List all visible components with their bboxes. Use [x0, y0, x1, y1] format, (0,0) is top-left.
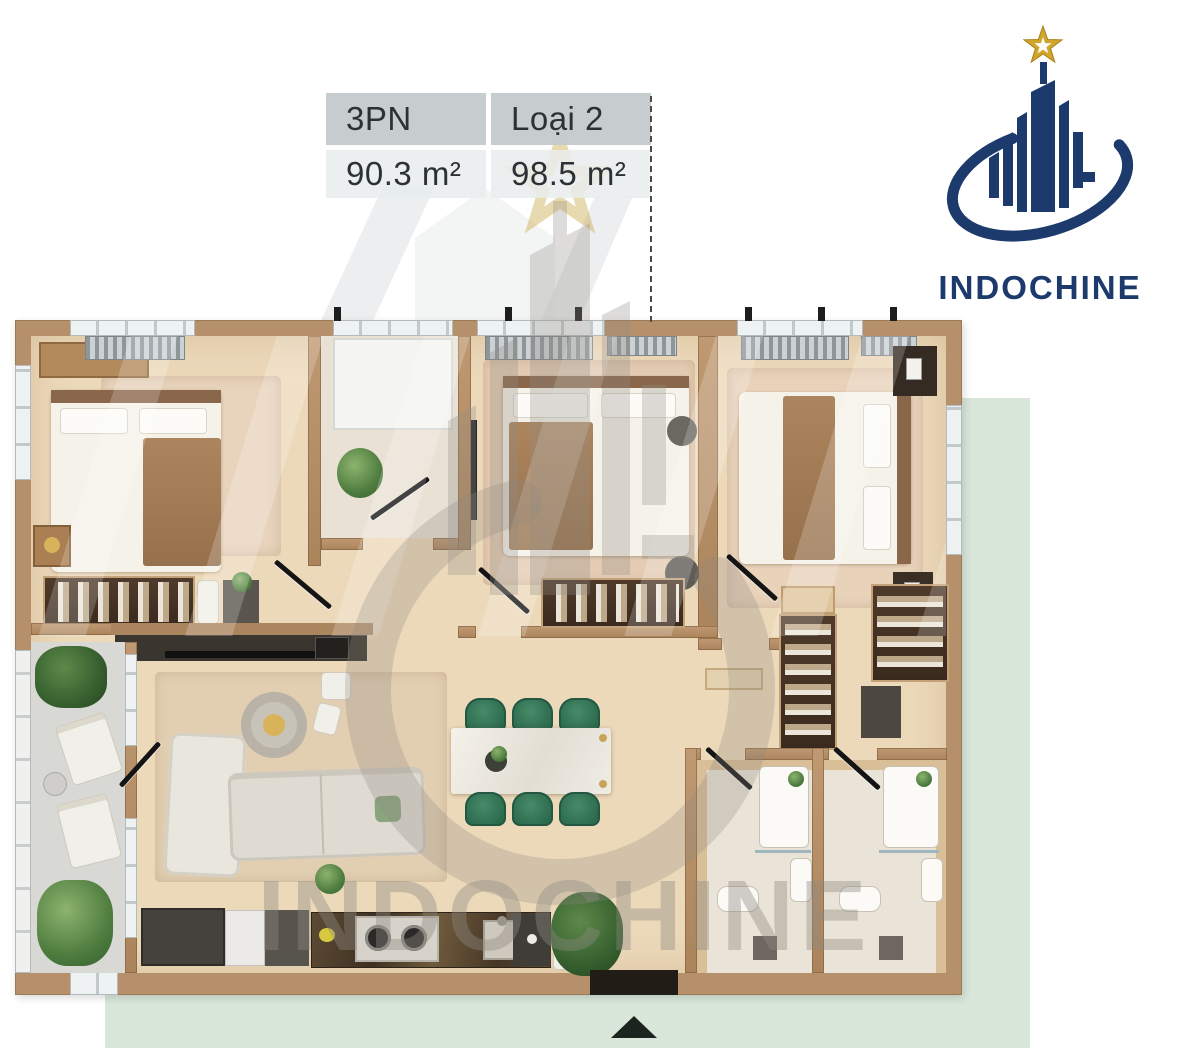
bathroom2-plant	[916, 771, 932, 787]
laundry-cabinet	[333, 338, 453, 430]
wall-bedroom1-closet	[308, 336, 321, 566]
window-top-bedroom2	[477, 320, 605, 336]
wall-closet-bedroom2	[458, 336, 471, 550]
balcony-plant-bottom	[37, 880, 113, 966]
kitchen-palm-plant	[551, 892, 623, 976]
bedroom3-headboard	[897, 392, 911, 564]
bathroom1-plant	[788, 771, 804, 787]
walkin-bench	[781, 586, 835, 614]
stove-burner	[401, 925, 427, 951]
bedroom1-cabinet	[223, 580, 259, 624]
tv-screen	[165, 651, 335, 658]
bedroom2-headboard	[503, 376, 689, 388]
bedroom1-pillow	[60, 408, 128, 434]
wall-bedroom2-bottom	[521, 626, 718, 638]
bedroom1-cabinet-plant	[232, 572, 252, 592]
wall-bedroom3-bottom	[698, 638, 722, 650]
bedroom1-blanket	[143, 438, 221, 566]
tv-wall	[111, 623, 373, 635]
dining-chair	[465, 792, 506, 826]
coffee-cup	[527, 934, 537, 944]
bedroom3-curtain-rail	[741, 336, 849, 360]
dining-chair	[559, 698, 600, 732]
kitchen-faucet	[497, 916, 507, 926]
walkin-wardrobe-right	[873, 586, 947, 680]
entrance-arrow-icon	[611, 1016, 657, 1038]
dining-chair	[559, 792, 600, 826]
bathroom1-shower-glass	[755, 850, 811, 853]
bathroom1-toilet	[717, 886, 759, 912]
bedroom1-headboard	[51, 390, 221, 403]
kitchen-cabinet	[265, 910, 309, 966]
side-table	[321, 672, 351, 700]
bathroom1-shower	[759, 766, 809, 848]
kitchen-island-cabinet	[141, 908, 225, 966]
bedroom3-pillow	[863, 404, 891, 468]
bedroom1-bed	[51, 390, 221, 572]
window-left-bedroom1	[15, 365, 31, 480]
balcony-railing	[15, 650, 31, 973]
dining-table-fitting	[599, 780, 607, 788]
wall-tick	[334, 307, 341, 321]
walkin-wardrobe-left	[781, 616, 835, 748]
bedroom2-pouf	[667, 416, 697, 446]
coffee-table-tray	[263, 714, 285, 736]
bedroom1-nightstand	[33, 525, 71, 567]
coffee-table	[241, 692, 307, 758]
bedroom2-curtain-rail	[485, 336, 593, 360]
bedroom2-wardrobe	[543, 580, 683, 626]
section-dashed-line	[650, 96, 652, 322]
bathroom2-sink	[921, 858, 943, 902]
bedroom1-lamp	[44, 537, 60, 553]
sofa-green-pillow	[374, 795, 401, 822]
floor-plan	[15, 320, 962, 995]
bathroom2-toilet	[839, 886, 881, 912]
wall-bathroom-middle	[812, 748, 824, 973]
wall-bathroom-top	[877, 748, 947, 760]
bathroom2-shower-glass	[879, 850, 939, 853]
wall-bedroom2-bedroom3	[698, 336, 718, 638]
wall-tick	[818, 307, 825, 321]
spec-type-header: 3PN	[326, 93, 486, 145]
window-right-bedroom3	[946, 405, 962, 555]
bathroom2-shower	[883, 766, 939, 848]
bedroom2-ac-unit	[607, 336, 677, 356]
logo-star-icon	[1024, 26, 1062, 62]
livingroom-plant	[315, 864, 345, 894]
balcony-plant-top	[35, 646, 107, 708]
walkin-vanity-desk	[861, 686, 901, 738]
reflection-shape	[415, 188, 555, 323]
spec-variant-header: Loại 2	[491, 93, 651, 145]
logo-brand-name: INDOCHINE	[915, 269, 1165, 307]
logo-graphic	[915, 20, 1165, 270]
bathroom1-sink	[790, 858, 812, 902]
closet-plant	[337, 448, 383, 498]
bedroom2-pillow	[513, 393, 588, 418]
sofa-cushion-seam	[320, 774, 325, 854]
wall-bathroom-left	[685, 748, 697, 973]
bathroom1-drain	[753, 936, 777, 960]
kitchen-flowers	[319, 928, 335, 942]
entrance-doorway	[590, 970, 678, 995]
wall-tick	[505, 307, 512, 321]
bedroom3-nightstand	[893, 346, 937, 396]
bedroom1-wardrobe	[45, 578, 193, 626]
sofa	[228, 767, 427, 862]
window-reflections	[265, 178, 705, 323]
wall-tick	[890, 307, 897, 321]
window-top-closet	[333, 320, 453, 336]
balcony-side-table	[43, 772, 67, 796]
bedroom2-blanket	[509, 422, 593, 550]
spec-variant-area: 98.5 m²	[491, 150, 651, 198]
hall-shoe-bench	[705, 668, 763, 690]
window-top-bedroom1	[70, 320, 195, 336]
bathroom1-mosaic	[697, 760, 707, 973]
kitchen-coffee-station	[513, 914, 551, 966]
dining-table-fitting	[599, 734, 607, 742]
wall-tick	[745, 307, 752, 321]
bedroom3-picture-frame	[906, 358, 922, 380]
dining-table	[451, 728, 611, 794]
window-top-bedroom3	[737, 320, 863, 336]
wall-tick	[575, 307, 582, 321]
dining-chair	[512, 698, 553, 732]
balcony-glass-panel	[125, 654, 137, 746]
spec-type-area: 90.3 m²	[326, 150, 486, 198]
indochine-logo: INDOCHINE	[915, 20, 1165, 307]
bedroom2-pillow	[601, 393, 676, 418]
dining-table-plant	[491, 746, 507, 762]
bedroom1-towel-shelf	[197, 580, 219, 624]
bedroom1-curtain-rail	[85, 336, 185, 360]
bedroom3-bed	[739, 392, 911, 564]
stove-burner	[365, 925, 391, 951]
bedroom1-pillow	[139, 408, 207, 434]
kitchen-stove	[355, 916, 439, 962]
dining-chair	[465, 698, 506, 732]
wall-closet-bottom	[321, 538, 363, 550]
bathroom2-drain	[879, 936, 903, 960]
spec-table: 3PN Loại 2 90.3 m² 98.5 m²	[326, 93, 656, 198]
tv-console	[115, 635, 367, 661]
bedroom2-wall-tv	[471, 420, 477, 520]
bedroom3-pillow	[863, 486, 891, 550]
bedroom3-blanket	[783, 396, 835, 560]
bedroom2-bed	[503, 376, 689, 556]
wall-bedroom2-bottom	[458, 626, 476, 638]
balcony-glass-panel	[125, 818, 137, 938]
dining-chair	[512, 792, 553, 826]
tv-artwork	[315, 637, 349, 659]
kitchen-fridge	[225, 910, 265, 966]
